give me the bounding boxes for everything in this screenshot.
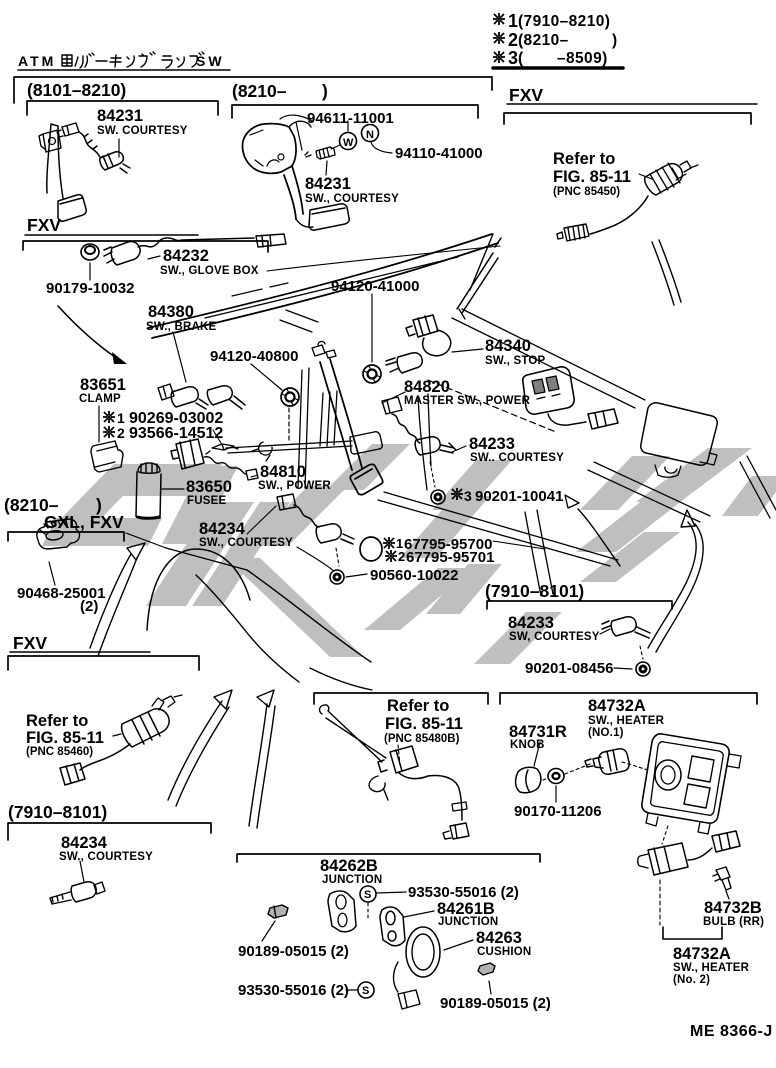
svg-text:(2): (2)	[80, 598, 98, 615]
svg-text:(PNC 85460): (PNC 85460)	[26, 746, 93, 758]
svg-text:94120-40800: 94120-40800	[210, 348, 298, 365]
svg-text:(8210–: (8210–	[518, 32, 569, 49]
svg-text:FIG. 85-11: FIG. 85-11	[26, 729, 104, 747]
svg-text:84732B: 84732B	[704, 899, 762, 917]
svg-text:84380: 84380	[148, 303, 194, 321]
svg-text:84732A: 84732A	[673, 945, 731, 963]
svg-text:84232: 84232	[163, 247, 209, 265]
svg-text:84263: 84263	[476, 929, 522, 947]
svg-text:FIG. 85-11: FIG. 85-11	[553, 168, 631, 186]
svg-text:90201-10041: 90201-10041	[475, 488, 563, 505]
svg-text:FIG. 85-11: FIG. 85-11	[385, 715, 463, 733]
svg-text:84732A: 84732A	[588, 697, 646, 715]
svg-text:1: 1	[508, 11, 518, 31]
svg-text:ME 8366-J: ME 8366-J	[690, 1023, 773, 1040]
svg-text:(7910–8210): (7910–8210)	[518, 13, 610, 30]
svg-text:SW.. COURTESY: SW.. COURTESY	[470, 452, 564, 464]
svg-text:GXL, FXV: GXL, FXV	[44, 512, 124, 532]
svg-text:FXV: FXV	[509, 85, 543, 105]
svg-text:84233: 84233	[469, 435, 515, 453]
svg-text:FUSEE: FUSEE	[187, 495, 226, 507]
svg-text:67795-95701: 67795-95701	[406, 549, 494, 566]
svg-text:3: 3	[508, 48, 518, 68]
svg-text:84234: 84234	[61, 834, 108, 852]
svg-text:84234: 84234	[199, 520, 246, 538]
svg-text:W: W	[343, 137, 354, 149]
svg-text:CUSHION: CUSHION	[477, 946, 531, 958]
svg-text:Refer to: Refer to	[26, 712, 88, 730]
svg-text:SW., POWER: SW., POWER	[258, 480, 331, 492]
svg-text:93566-14512: 93566-14512	[129, 425, 223, 442]
svg-text:90201-08456: 90201-08456	[525, 660, 613, 677]
svg-text:84810: 84810	[260, 463, 306, 481]
svg-text:93530-55016 (2): 93530-55016 (2)	[238, 982, 349, 999]
svg-text:84340: 84340	[485, 337, 531, 355]
svg-text:SW: SW	[196, 53, 225, 69]
svg-text:90189-05015 (2): 90189-05015 (2)	[238, 943, 349, 960]
svg-text:94120-41000: 94120-41000	[331, 278, 419, 295]
svg-text:84231: 84231	[305, 175, 351, 193]
svg-text:90179-10032: 90179-10032	[46, 280, 134, 297]
svg-text:(PNC 85480B): (PNC 85480B)	[384, 733, 460, 745]
svg-text:SW., HEATER: SW., HEATER	[673, 962, 750, 974]
svg-text:): )	[322, 81, 328, 101]
svg-text:SW, COURTESY: SW, COURTESY	[509, 631, 600, 643]
svg-text:Refer to: Refer to	[553, 150, 615, 168]
svg-text:(7910–8101): (7910–8101)	[8, 802, 107, 822]
svg-text:(8101–8210): (8101–8210)	[27, 80, 126, 100]
svg-text:S: S	[362, 985, 369, 997]
svg-text:): )	[612, 32, 617, 49]
svg-text:3: 3	[464, 488, 472, 504]
svg-text:(NO.1): (NO.1)	[588, 727, 624, 739]
svg-text:84233: 84233	[508, 614, 554, 632]
svg-text:(PNC 85450): (PNC 85450)	[553, 186, 620, 198]
svg-text:–8509): –8509)	[557, 50, 608, 67]
svg-text:KNOB: KNOB	[510, 739, 545, 751]
svg-text:90170-11206: 90170-11206	[514, 803, 602, 820]
svg-text:83650: 83650	[186, 478, 232, 496]
svg-text:83651: 83651	[80, 376, 126, 394]
svg-text:90189-05015 (2): 90189-05015 (2)	[440, 995, 551, 1012]
svg-text:FXV: FXV	[27, 215, 61, 235]
svg-text:(8210–: (8210–	[232, 81, 287, 101]
svg-text:MASTER SW., POWER: MASTER SW., POWER	[404, 395, 531, 407]
svg-text:SW., COURTESY: SW., COURTESY	[59, 851, 153, 863]
svg-text:BULB (RR): BULB (RR)	[703, 916, 764, 928]
svg-text:SW., HEATER: SW., HEATER	[588, 715, 665, 727]
svg-text:SW., GLOVE BOX: SW., GLOVE BOX	[160, 265, 259, 277]
svg-text:ATM: ATM	[18, 53, 56, 69]
svg-text:SW., BRAKE: SW., BRAKE	[146, 321, 216, 333]
svg-text:2: 2	[398, 549, 405, 564]
svg-text:93530-55016 (2): 93530-55016 (2)	[408, 884, 519, 901]
svg-text:SW. COURTESY: SW. COURTESY	[97, 125, 188, 137]
svg-text:SW., COURTESY: SW., COURTESY	[305, 193, 399, 205]
svg-text:2: 2	[508, 30, 518, 50]
svg-text:Refer to: Refer to	[387, 697, 449, 715]
svg-text:(7910–8101): (7910–8101)	[485, 581, 584, 601]
svg-text:2: 2	[117, 425, 125, 441]
svg-text:90560-10022: 90560-10022	[370, 567, 458, 584]
svg-text:(No. 2): (No. 2)	[673, 974, 710, 986]
svg-text:S: S	[364, 889, 371, 901]
svg-text:84231: 84231	[97, 107, 143, 125]
svg-text:SW., STOP: SW., STOP	[485, 355, 546, 367]
svg-text:FXV: FXV	[13, 633, 47, 653]
svg-text:94110-41000: 94110-41000	[395, 145, 483, 162]
svg-text:CLAMP: CLAMP	[79, 393, 121, 405]
svg-text:94611-11001: 94611-11001	[307, 110, 394, 127]
svg-text:(: (	[518, 50, 524, 67]
svg-text:JUNCTION: JUNCTION	[322, 874, 382, 886]
svg-text:84820: 84820	[404, 378, 450, 396]
svg-text:SW., COURTESY: SW., COURTESY	[199, 537, 293, 549]
svg-text:JUNCTION: JUNCTION	[438, 916, 498, 928]
svg-text:84262B: 84262B	[320, 857, 378, 875]
svg-text:N: N	[366, 129, 374, 141]
svg-text:1: 1	[117, 410, 125, 426]
